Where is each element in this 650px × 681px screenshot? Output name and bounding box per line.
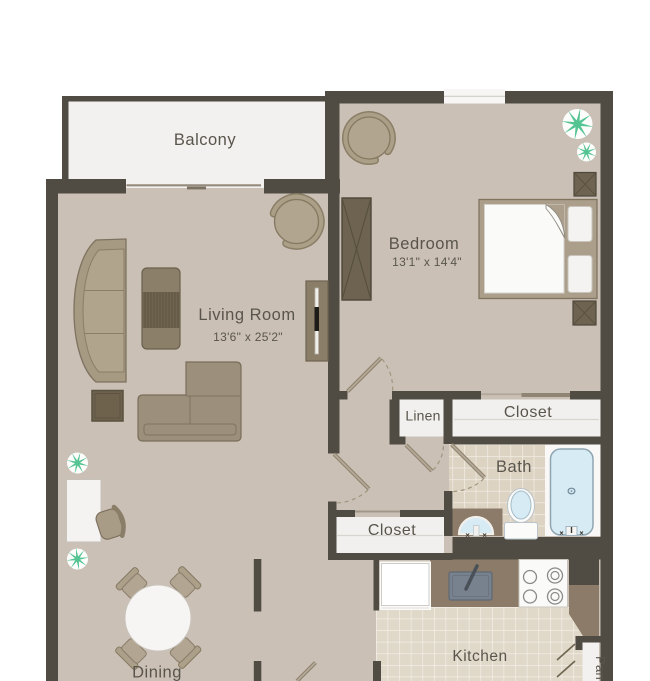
svg-text:Dining: Dining xyxy=(132,664,182,681)
svg-text:13'1" x 14'4": 13'1" x 14'4" xyxy=(392,255,462,269)
svg-text:Bedroom: Bedroom xyxy=(389,235,459,253)
svg-text:Linen: Linen xyxy=(405,408,440,424)
svg-text:Closet: Closet xyxy=(368,522,416,539)
svg-text:Living Room: Living Room xyxy=(198,306,295,324)
svg-text:Pan: Pan xyxy=(593,656,608,680)
svg-text:Balcony: Balcony xyxy=(174,131,236,149)
svg-text:Bath: Bath xyxy=(496,458,532,476)
svg-text:13'6" x 25'2": 13'6" x 25'2" xyxy=(213,330,283,344)
svg-text:Closet: Closet xyxy=(504,404,552,421)
svg-text:Kitchen: Kitchen xyxy=(452,648,507,665)
